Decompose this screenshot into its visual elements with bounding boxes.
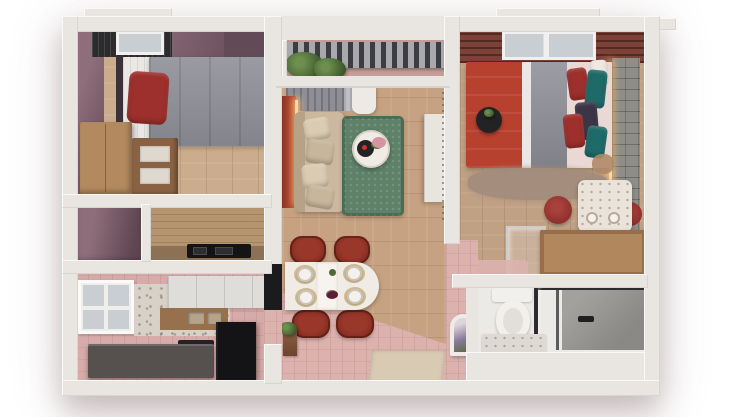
room-cooktop-nook bbox=[151, 206, 266, 264]
sofa-pillow-2 bbox=[304, 138, 335, 166]
interior-wall-right-column bbox=[444, 16, 460, 244]
plate-1 bbox=[297, 267, 313, 282]
tray-red-dot-icon bbox=[362, 145, 367, 150]
interior-wall-left-column-lower bbox=[264, 344, 282, 384]
bedroom2-red-pillow-2 bbox=[562, 113, 585, 149]
closet-divider-wall bbox=[141, 204, 151, 262]
outer-wall-top-right bbox=[446, 16, 656, 32]
interior-wall-left-column bbox=[264, 16, 282, 266]
shower-glass-screen-2 bbox=[556, 286, 559, 350]
outer-wall-right bbox=[644, 16, 660, 396]
dining-chair-3 bbox=[292, 310, 330, 338]
kitchen-black-fridge-unit bbox=[216, 322, 256, 380]
window-pane-3 bbox=[83, 310, 104, 329]
shower-fixture-icon bbox=[578, 316, 594, 322]
floor-plan-canvas bbox=[0, 0, 750, 417]
window-pane-1 bbox=[83, 285, 104, 306]
toilet-seat bbox=[503, 308, 523, 334]
bedroom2-gray-blanket bbox=[531, 62, 567, 168]
room-kitchen bbox=[76, 274, 264, 384]
bedroom2-sheet-fold bbox=[522, 62, 531, 168]
kitchen-upper-cabinets bbox=[168, 276, 264, 308]
hall-plant-icon bbox=[280, 322, 297, 335]
entrance-door-mat bbox=[368, 350, 446, 384]
dining-chair-1 bbox=[290, 236, 326, 264]
bedroom1-dresser-seam bbox=[105, 124, 106, 192]
cooktop-burner-1-icon bbox=[193, 247, 207, 255]
kitchen-sink-basin-1 bbox=[188, 312, 204, 324]
room-bathroom bbox=[466, 288, 646, 386]
wall-below-bedroom2 bbox=[452, 274, 648, 288]
bathroom-shower-tray bbox=[562, 288, 646, 350]
bedroom1-skylight-window bbox=[116, 31, 164, 55]
kitchen-doorway-floor bbox=[264, 310, 282, 346]
wall-below-bedroom1 bbox=[62, 194, 272, 208]
bathroom-stone-shelf bbox=[482, 334, 546, 352]
wall-above-kitchen bbox=[62, 260, 272, 274]
plate-2 bbox=[346, 266, 362, 281]
kitchen-graphite-counter bbox=[88, 344, 214, 378]
table-fruit-plate-icon bbox=[326, 290, 338, 299]
coffee-table-flowers-icon bbox=[372, 137, 386, 148]
vanity-jar-icon bbox=[608, 212, 620, 224]
vanity-mirror-icon bbox=[586, 212, 598, 224]
outer-wall-bottom bbox=[62, 380, 660, 396]
outer-wall-top-left bbox=[62, 16, 272, 32]
room-bedroom-2 bbox=[460, 30, 646, 278]
room-closet bbox=[76, 206, 143, 264]
table-greenery-icon bbox=[329, 269, 336, 276]
bedroom1-nightstand-drawer-1 bbox=[140, 146, 170, 162]
plate-3 bbox=[298, 290, 314, 305]
cooktop-burner-2-icon bbox=[215, 247, 233, 255]
bedroom2-dresser bbox=[540, 230, 646, 276]
kitchen-window bbox=[78, 280, 134, 334]
living-curtain-white bbox=[352, 86, 376, 114]
sofa-pillow-4 bbox=[304, 184, 335, 211]
bedroom2-skylight-window bbox=[502, 31, 596, 60]
vanity-dried-flowers-icon bbox=[592, 154, 614, 174]
window-pane-2 bbox=[108, 285, 129, 306]
bedroom2-pouf-1 bbox=[544, 196, 572, 224]
bedroom1-red-pillow bbox=[126, 71, 170, 126]
dining-chair-2 bbox=[334, 236, 370, 264]
sofa-pillow-1 bbox=[302, 116, 331, 142]
dining-chair-4 bbox=[336, 310, 374, 338]
bedroom1-dresser bbox=[80, 122, 132, 194]
bathroom-left-wall bbox=[466, 288, 478, 352]
room-living-dining bbox=[282, 88, 446, 386]
window-pane-4 bbox=[108, 310, 129, 329]
plate-4 bbox=[347, 289, 363, 304]
bedroom2-vanity-table bbox=[578, 180, 632, 232]
side-table-plant-icon bbox=[484, 109, 494, 117]
balcony-sliding-door-wall bbox=[276, 76, 450, 88]
bedroom1-nightstand-drawer-2 bbox=[140, 168, 170, 184]
room-bedroom-1 bbox=[76, 30, 266, 196]
